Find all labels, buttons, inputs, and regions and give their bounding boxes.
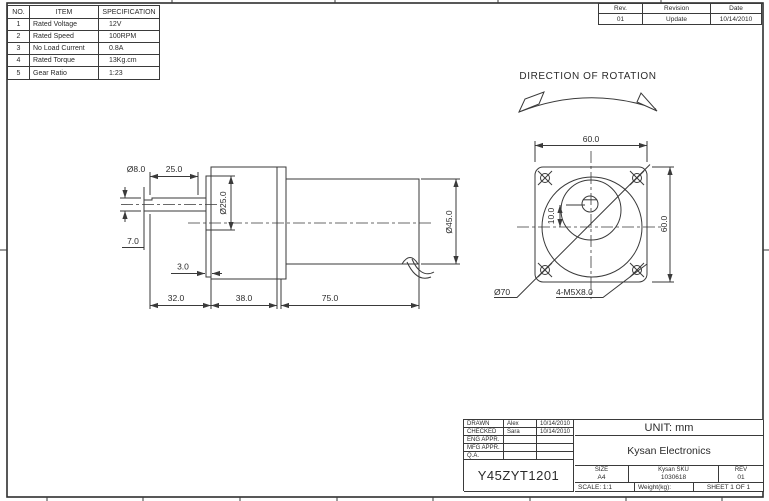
dim-bolt-circle: Ø70 (494, 165, 650, 298)
approval-date (537, 436, 573, 444)
rev-cell: REV 01 (719, 466, 764, 483)
spec-cell: 5 (8, 67, 30, 79)
motor-wires (407, 259, 434, 278)
dim-motor-diameter: Ø45.0 (421, 179, 460, 264)
front-view: 60.0 60.0 10.0 Ø70 4-M5X8.0 (494, 134, 674, 299)
dim-label: 3.0 (177, 262, 189, 272)
dim-label: 75.0 (322, 293, 339, 303)
dim-label: 32.0 (168, 293, 185, 303)
rev-header-rev: Rev. (599, 4, 643, 14)
rotation-flag (519, 92, 544, 112)
side-view: Ø8.0 25.0 7.0 Ø25.0 3 (120, 164, 460, 309)
dim-label: Ø45.0 (444, 210, 454, 233)
spec-cell: 2 (8, 31, 30, 43)
unit-label: UNIT: mm (575, 420, 764, 436)
dim-label: 38.0 (236, 293, 253, 303)
dim-mounting-holes-callout: 4-M5X8.0 (556, 264, 647, 298)
gearbox-front-plate (206, 176, 211, 277)
spec-header-no: NO. (8, 6, 30, 19)
rotation-annotation: DIRECTION OF ROTATION (519, 71, 657, 112)
ext-line (150, 214, 419, 309)
spec-cell: 3 (8, 43, 30, 55)
rev-header-revision: Revision (643, 4, 711, 14)
rotation-arrowhead-icon (637, 93, 657, 111)
approval-role: DRAWN (464, 420, 504, 428)
dim-label: 60.0 (659, 215, 669, 232)
approval-role: MFG APPR. (464, 444, 504, 452)
title-block-approvals: DRAWN Alex 10/14/2010 CHECKED Sara 10/14… (464, 420, 574, 492)
approval-role: ENG APPR. (464, 436, 504, 444)
approval-date (537, 452, 573, 460)
dim-bottom-lengths: 32.0 38.0 75.0 (150, 214, 419, 309)
sku-cell: Kysan SKU 1030618 (629, 466, 719, 483)
dim-label: 10.0 (546, 207, 556, 224)
dim-label: Ø25.0 (218, 191, 228, 214)
spec-cell: Gear Ratio (30, 67, 99, 79)
sku-label: Kysan SKU (658, 467, 689, 474)
approval-date (537, 444, 573, 452)
dim-flange-height: 60.0 (652, 167, 674, 282)
title-block: DRAWN Alex 10/14/2010 CHECKED Sara 10/14… (463, 419, 763, 491)
approval-name (504, 444, 537, 452)
spec-cell: No Load Current (30, 43, 99, 55)
spec-header-item: ITEM (30, 6, 99, 19)
spec-cell: 1 (8, 19, 30, 31)
dim-shaft-length: 25.0 (150, 164, 198, 195)
drawing-sheet: Ø8.0 25.0 7.0 Ø25.0 3 (0, 0, 769, 501)
spec-cell: 12V (99, 19, 159, 31)
size-value: A4 (598, 474, 606, 481)
spec-cell: 13Kg.cm (99, 55, 159, 67)
rev-cell: 01 (599, 14, 643, 24)
dim-label: 25.0 (166, 164, 183, 174)
size-label: SIZE (595, 467, 608, 474)
wire-grommet (402, 258, 418, 265)
approval-name: Alex (504, 420, 537, 428)
dim-label: Ø70 (494, 287, 510, 297)
rotation-label: DIRECTION OF ROTATION (519, 71, 656, 82)
approval-name: Sara (504, 428, 537, 436)
mounting-hole (538, 171, 552, 185)
dim-label: Ø8.0 (127, 164, 146, 174)
rev-cell: 10/14/2010 (711, 14, 761, 24)
dim-label: 4-M5X8.0 (556, 287, 593, 297)
rev-header-date: Date (711, 4, 761, 14)
spec-cell: Rated Torque (30, 55, 99, 67)
spec-cell: 1:23 (99, 67, 159, 79)
revision-table: Rev. Revision Date 01 Update 10/14/2010 (598, 3, 762, 25)
approval-role: Q.A. (464, 452, 504, 460)
dim-label: 7.0 (127, 236, 139, 246)
dim-label: 60.0 (583, 134, 600, 144)
spec-cell: 4 (8, 55, 30, 67)
approval-name (504, 436, 537, 444)
rev-label: REV (735, 467, 747, 474)
spec-cell: Rated Speed (30, 31, 99, 43)
approval-date: 10/14/2010 (537, 428, 573, 436)
sheet-cell: SHEET 1 OF 1 (694, 483, 764, 492)
shaft-circle (582, 196, 598, 212)
dim-boss-diameter: Ø25.0 (206, 176, 235, 230)
rev-value: 01 (737, 474, 744, 481)
scale-cell: SCALE: 1:1 (575, 483, 635, 492)
ext-line (421, 179, 460, 264)
approval-name (504, 452, 537, 460)
part-number: Y45ZYT1201 (464, 460, 573, 492)
ext-line (150, 172, 198, 195)
motor-body (286, 179, 419, 264)
sku-value: 1030618 (661, 474, 686, 481)
approval-date: 10/14/2010 (537, 420, 573, 428)
weight-cell: Weight(kg): (635, 483, 694, 492)
spec-cell: Rated Voltage (30, 19, 99, 31)
size-cell: SIZE A4 (575, 466, 629, 483)
rev-cell: Update (643, 14, 711, 24)
spec-table: NO. ITEM SPECIFICATION 1 Rated Voltage 1… (7, 5, 160, 80)
dim-shaft-offset: 10.0 (546, 205, 585, 227)
spec-cell: 100RPM (99, 31, 159, 43)
company-name: Kysan Electronics (575, 436, 764, 466)
approval-role: CHECKED (464, 428, 504, 436)
spec-cell: 0.8A (99, 43, 159, 55)
dim-boss-length: 3.0 (171, 262, 222, 274)
leader-line (494, 165, 650, 298)
title-block-info: UNIT: mm Kysan Electronics SIZE A4 Kysan… (575, 420, 764, 492)
spec-header-spec: SPECIFICATION (99, 6, 159, 19)
dim-shaft-diameter: Ø8.0 (120, 164, 145, 222)
